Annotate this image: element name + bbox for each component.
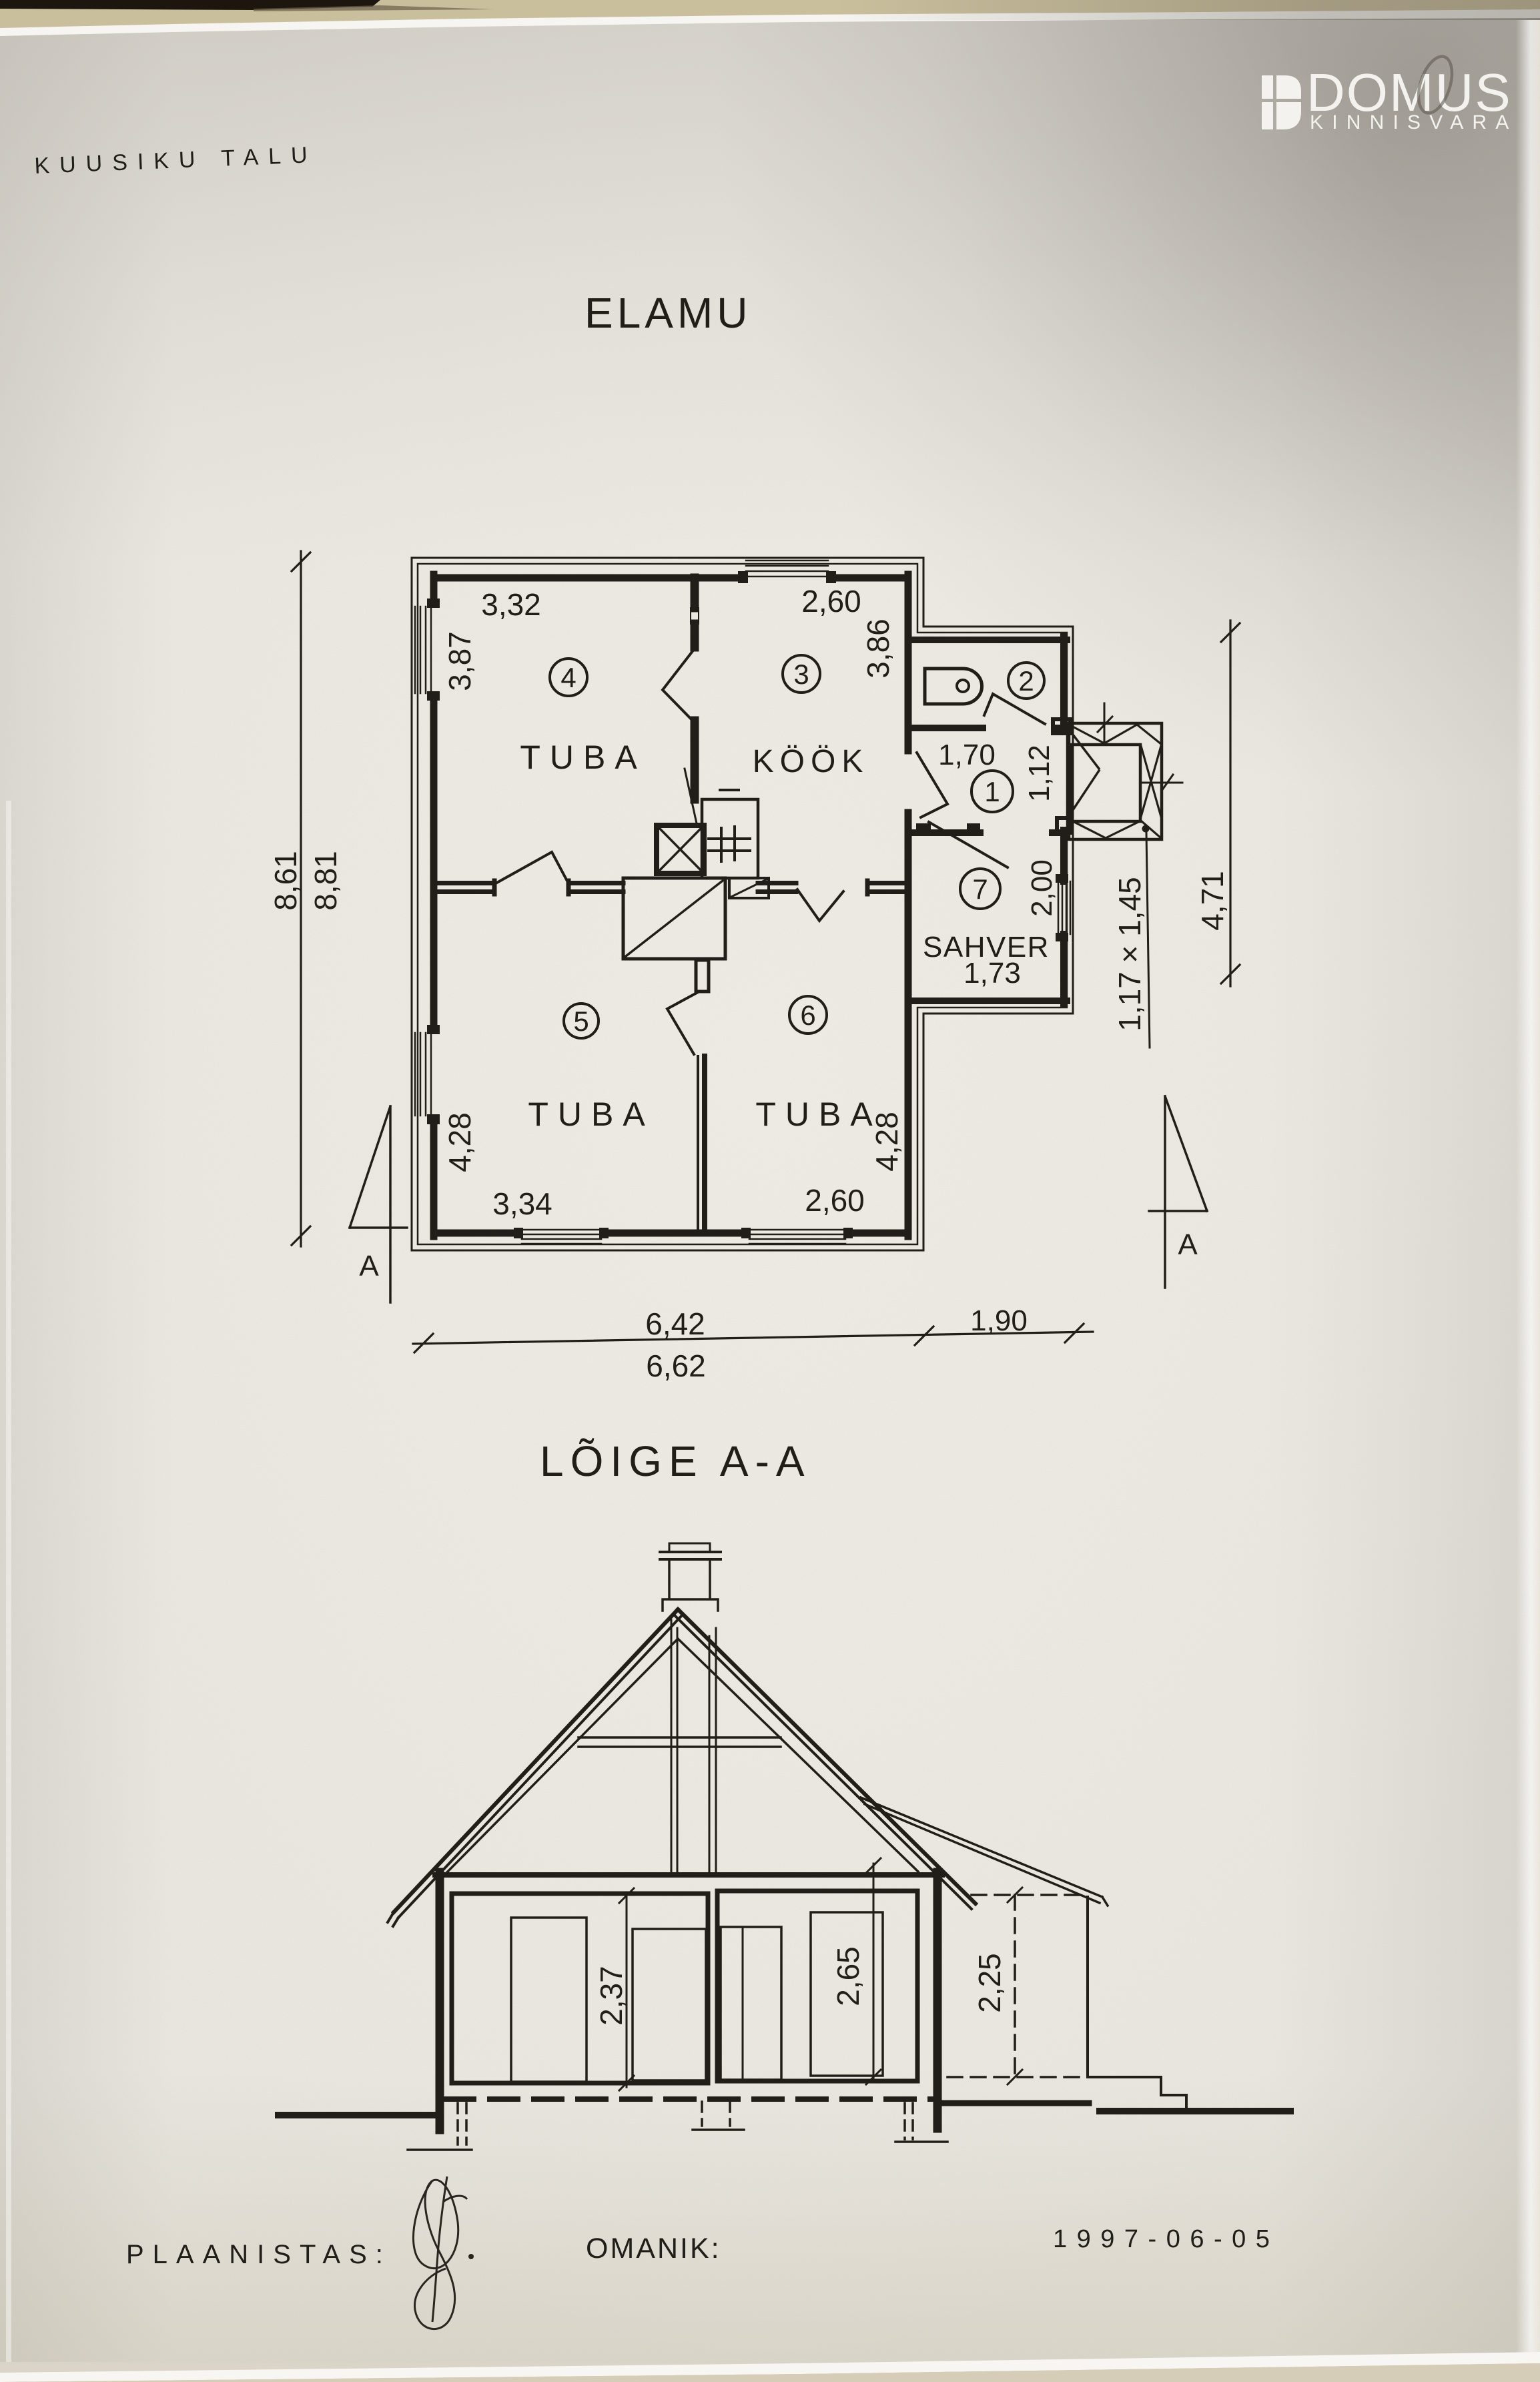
svg-text:1,70: 1,70 bbox=[938, 739, 996, 771]
svg-text:6: 6 bbox=[800, 1000, 815, 1031]
svg-text:2,60: 2,60 bbox=[801, 584, 861, 619]
svg-text:7: 7 bbox=[972, 873, 988, 905]
svg-text:TUBA: TUBA bbox=[528, 1096, 654, 1133]
svg-text:4,28: 4,28 bbox=[442, 1112, 477, 1172]
svg-text:2,37: 2,37 bbox=[594, 1966, 629, 2026]
svg-text:3,86: 3,86 bbox=[861, 619, 895, 679]
svg-text:3: 3 bbox=[793, 659, 809, 690]
svg-text:8,61: 8,61 bbox=[268, 851, 303, 911]
svg-text:1,12: 1,12 bbox=[1023, 745, 1056, 802]
svg-text:KÖÖK: KÖÖK bbox=[753, 744, 869, 779]
svg-text:2,00: 2,00 bbox=[1026, 859, 1058, 917]
svg-text:4: 4 bbox=[560, 662, 576, 693]
svg-text:1,73: 1,73 bbox=[964, 957, 1021, 989]
svg-text:TUBA: TUBA bbox=[520, 739, 646, 776]
svg-text:2,65: 2,65 bbox=[831, 1946, 865, 2006]
svg-text:3,32: 3,32 bbox=[481, 587, 541, 622]
svg-text:3,87: 3,87 bbox=[442, 631, 477, 691]
svg-text:4,71: 4,71 bbox=[1195, 871, 1230, 931]
svg-text:2,60: 2,60 bbox=[805, 1183, 865, 1218]
svg-text:PLAANISTAS:: PLAANISTAS: bbox=[126, 2240, 392, 2269]
svg-text:8,81: 8,81 bbox=[308, 851, 343, 911]
svg-text:1997-06-05: 1997-06-05 bbox=[1053, 2225, 1279, 2253]
svg-text:TUBA: TUBA bbox=[755, 1096, 881, 1133]
svg-text:ELAMU: ELAMU bbox=[585, 289, 752, 337]
svg-text:A: A bbox=[1178, 1228, 1198, 1261]
svg-text:2: 2 bbox=[1018, 665, 1034, 697]
svg-text:2,25: 2,25 bbox=[972, 1953, 1007, 2013]
svg-text:OMANIK:: OMANIK: bbox=[586, 2233, 721, 2265]
svg-text:4,28: 4,28 bbox=[869, 1112, 904, 1172]
svg-text:1,17 × 1,45: 1,17 × 1,45 bbox=[1112, 877, 1147, 1031]
svg-text:6,62: 6,62 bbox=[646, 1348, 706, 1383]
svg-text:5: 5 bbox=[573, 1006, 589, 1037]
svg-text:3,34: 3,34 bbox=[492, 1186, 552, 1221]
svg-text:KINNISVARA: KINNISVARA bbox=[1310, 111, 1518, 133]
svg-text:6,42: 6,42 bbox=[645, 1306, 705, 1341]
svg-text:1,90: 1,90 bbox=[970, 1304, 1028, 1337]
svg-text:1: 1 bbox=[984, 776, 1000, 807]
svg-text:A: A bbox=[359, 1250, 379, 1282]
svg-text:LÕIGE A-A: LÕIGE A-A bbox=[540, 1437, 811, 1485]
